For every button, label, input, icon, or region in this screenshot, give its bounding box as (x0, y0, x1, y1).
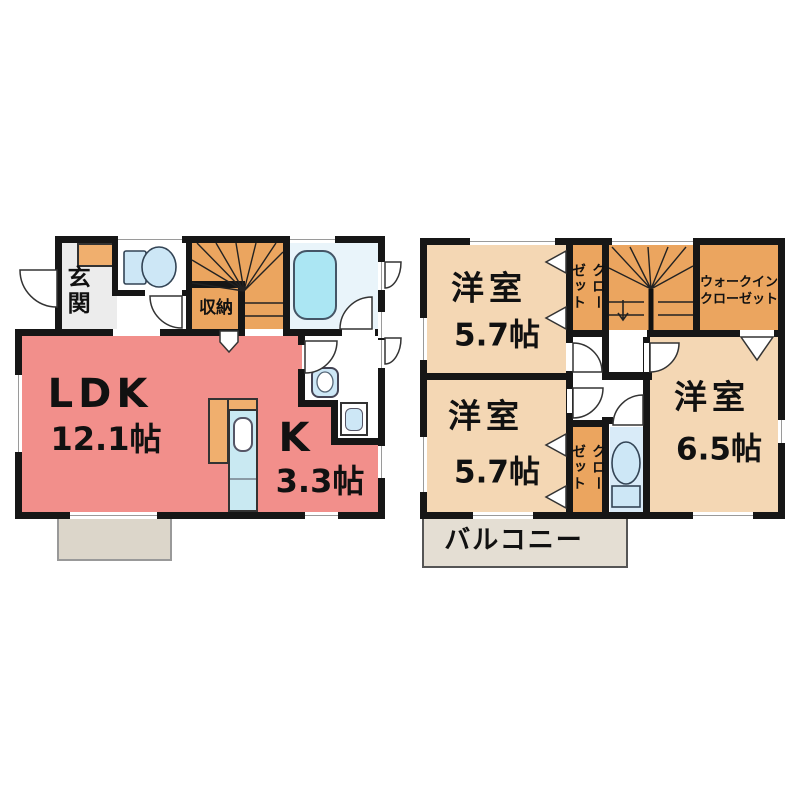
storage-label: 収納 (199, 300, 233, 318)
kitchen-label: K (279, 417, 310, 459)
wall-segment (283, 236, 290, 336)
door-opening (609, 330, 647, 337)
wall-segment (55, 236, 62, 336)
bedroom3-size: 6.5帖 (676, 434, 762, 467)
balcony-label: バルコニー (444, 527, 583, 554)
window (378, 446, 385, 478)
bedroom3-label: 洋室 (674, 381, 750, 416)
washroom-window-arc (385, 338, 401, 364)
window (778, 420, 785, 443)
bath-window-arc (385, 262, 401, 288)
entrance-label: 玄関 (64, 265, 88, 317)
bedroom2-size: 5.7帖 (454, 457, 540, 490)
door-opening (613, 417, 641, 424)
room-toilet-2f (610, 427, 643, 512)
entrance-door-arc (20, 270, 57, 307)
door-opening (740, 330, 774, 337)
wall-segment (112, 236, 118, 296)
window (290, 236, 335, 243)
window (70, 512, 157, 519)
bedroom1-label: 洋室 (451, 272, 527, 307)
room-toilet-1f (117, 243, 186, 296)
window (305, 512, 338, 519)
window (693, 512, 753, 519)
kitchen-size: 3.3帖 (276, 465, 365, 499)
window (473, 512, 533, 519)
bedroom1-size: 5.7帖 (454, 320, 540, 353)
wall-segment (331, 438, 385, 445)
door-opening (245, 329, 283, 336)
hallway-1f (117, 296, 190, 331)
wall-segment (566, 330, 609, 337)
window (420, 318, 427, 360)
kitchen-sink (233, 417, 253, 452)
kitchen-cabinet-left (208, 398, 229, 464)
window (378, 340, 385, 368)
door-opening (145, 290, 182, 296)
kitchen-counter-divider (230, 478, 256, 480)
wall-segment (15, 329, 385, 336)
wall-segment (420, 373, 573, 380)
ldk-label: LDK (48, 373, 153, 415)
window (118, 236, 182, 243)
washing-machine-drum (345, 408, 363, 431)
closet1-label: クローゼット (568, 263, 608, 311)
door-opening (342, 329, 375, 336)
door-opening (113, 329, 160, 336)
wall-segment (55, 236, 385, 243)
wall-segment (778, 238, 785, 519)
bathtub (293, 250, 337, 320)
ldk-size: 12.1帖 (51, 423, 162, 457)
room-bedroom1 (427, 245, 570, 375)
shoe-cabinet (77, 243, 117, 267)
door-opening (567, 389, 572, 413)
window (15, 375, 22, 452)
wall-segment (693, 238, 700, 337)
staircase-2f (609, 245, 693, 330)
window (378, 262, 385, 290)
window (612, 238, 693, 245)
door-opening (567, 343, 572, 371)
washbasin (311, 367, 339, 398)
bedroom2-label: 洋室 (448, 400, 524, 435)
kitchen-counter (228, 398, 258, 512)
porch (57, 517, 172, 561)
window (470, 238, 555, 245)
walk-in-closet-label: ウォークインクローゼット (700, 275, 778, 309)
floorplan-canvas: 玄関 収納 LDK 12.1帖 K 3.3帖 洋室 5.7帖 クローゼット ウォ… (0, 0, 800, 800)
window (378, 312, 385, 338)
room-bedroom3 (650, 337, 778, 512)
window (420, 437, 427, 492)
wall-segment (298, 336, 305, 345)
closet2-label: クローゼット (568, 444, 608, 492)
wall-segment (238, 281, 245, 336)
wall-segment (186, 281, 245, 288)
door-opening (644, 343, 649, 372)
washing-machine (340, 402, 368, 436)
wall-segment (647, 330, 693, 337)
